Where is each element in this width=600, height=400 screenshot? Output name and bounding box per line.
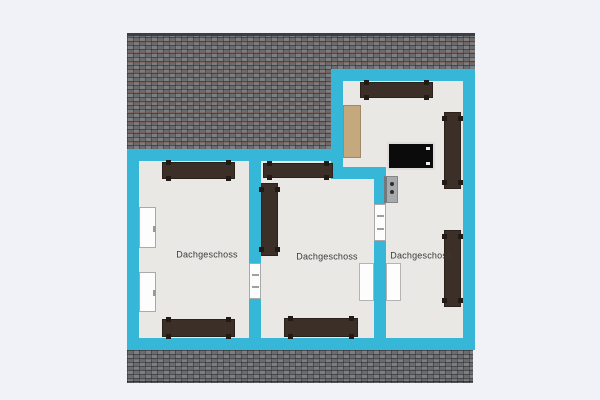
wall (127, 149, 343, 161)
furniture-foot (364, 95, 369, 100)
roof-bottom (127, 350, 473, 383)
furniture-foot (458, 234, 463, 239)
furniture-foot (259, 187, 264, 192)
furniture-foot (288, 316, 293, 321)
wall (331, 69, 475, 81)
furniture-foot (166, 317, 171, 322)
sofa (360, 82, 433, 98)
sofa (162, 162, 235, 179)
room-label: Dachgeschoss (296, 253, 357, 262)
furniture-foot (458, 180, 463, 185)
furniture-foot (424, 95, 429, 100)
sofa (284, 318, 358, 337)
furniture-foot (364, 80, 369, 85)
furniture-foot (259, 247, 264, 252)
window (139, 207, 156, 248)
door-panel (359, 263, 374, 301)
appliance-knob (390, 190, 394, 194)
floorplan-canvas: DachgeschossDachgeschossDachgeschoss (0, 0, 600, 400)
furniture-foot (226, 160, 231, 165)
cabinet (261, 183, 278, 256)
furniture-foot (442, 298, 447, 303)
furniture-foot (349, 334, 354, 339)
wall (127, 149, 139, 350)
furniture-foot (166, 160, 171, 165)
sofa (263, 163, 333, 178)
door-panel (386, 263, 401, 301)
tv-indicator (426, 162, 430, 165)
window (139, 272, 156, 312)
sofa (162, 319, 235, 337)
window (374, 204, 386, 241)
furniture-foot (324, 175, 329, 180)
wall (127, 338, 475, 350)
appliance (384, 176, 398, 203)
furniture-foot (275, 247, 280, 252)
furniture-foot (349, 316, 354, 321)
room-label: Dachgeschoss (176, 251, 237, 260)
radiator (444, 112, 461, 189)
furniture-foot (442, 180, 447, 185)
furniture-foot (442, 116, 447, 121)
furniture-foot (226, 176, 231, 181)
furniture-foot (458, 298, 463, 303)
room-label: Dachgeschoss (390, 252, 451, 261)
furniture-foot (288, 334, 293, 339)
door (249, 263, 261, 299)
tv-icon (387, 142, 435, 170)
appliance-knob (390, 182, 394, 186)
tv-indicator (426, 147, 430, 150)
furniture-foot (226, 317, 231, 322)
furniture-foot (275, 187, 280, 192)
floorplan: DachgeschossDachgeschossDachgeschoss (0, 0, 600, 400)
wall (463, 69, 475, 350)
furniture-foot (267, 175, 272, 180)
furniture-foot (458, 116, 463, 121)
furniture-foot (424, 80, 429, 85)
dresser (343, 105, 361, 158)
furniture-foot (166, 176, 171, 181)
roof-ridge (127, 33, 475, 36)
furniture-foot (267, 161, 272, 166)
furniture-foot (324, 161, 329, 166)
furniture-foot (166, 334, 171, 339)
furniture-foot (226, 334, 231, 339)
furniture-foot (442, 234, 447, 239)
radiator (444, 230, 461, 307)
